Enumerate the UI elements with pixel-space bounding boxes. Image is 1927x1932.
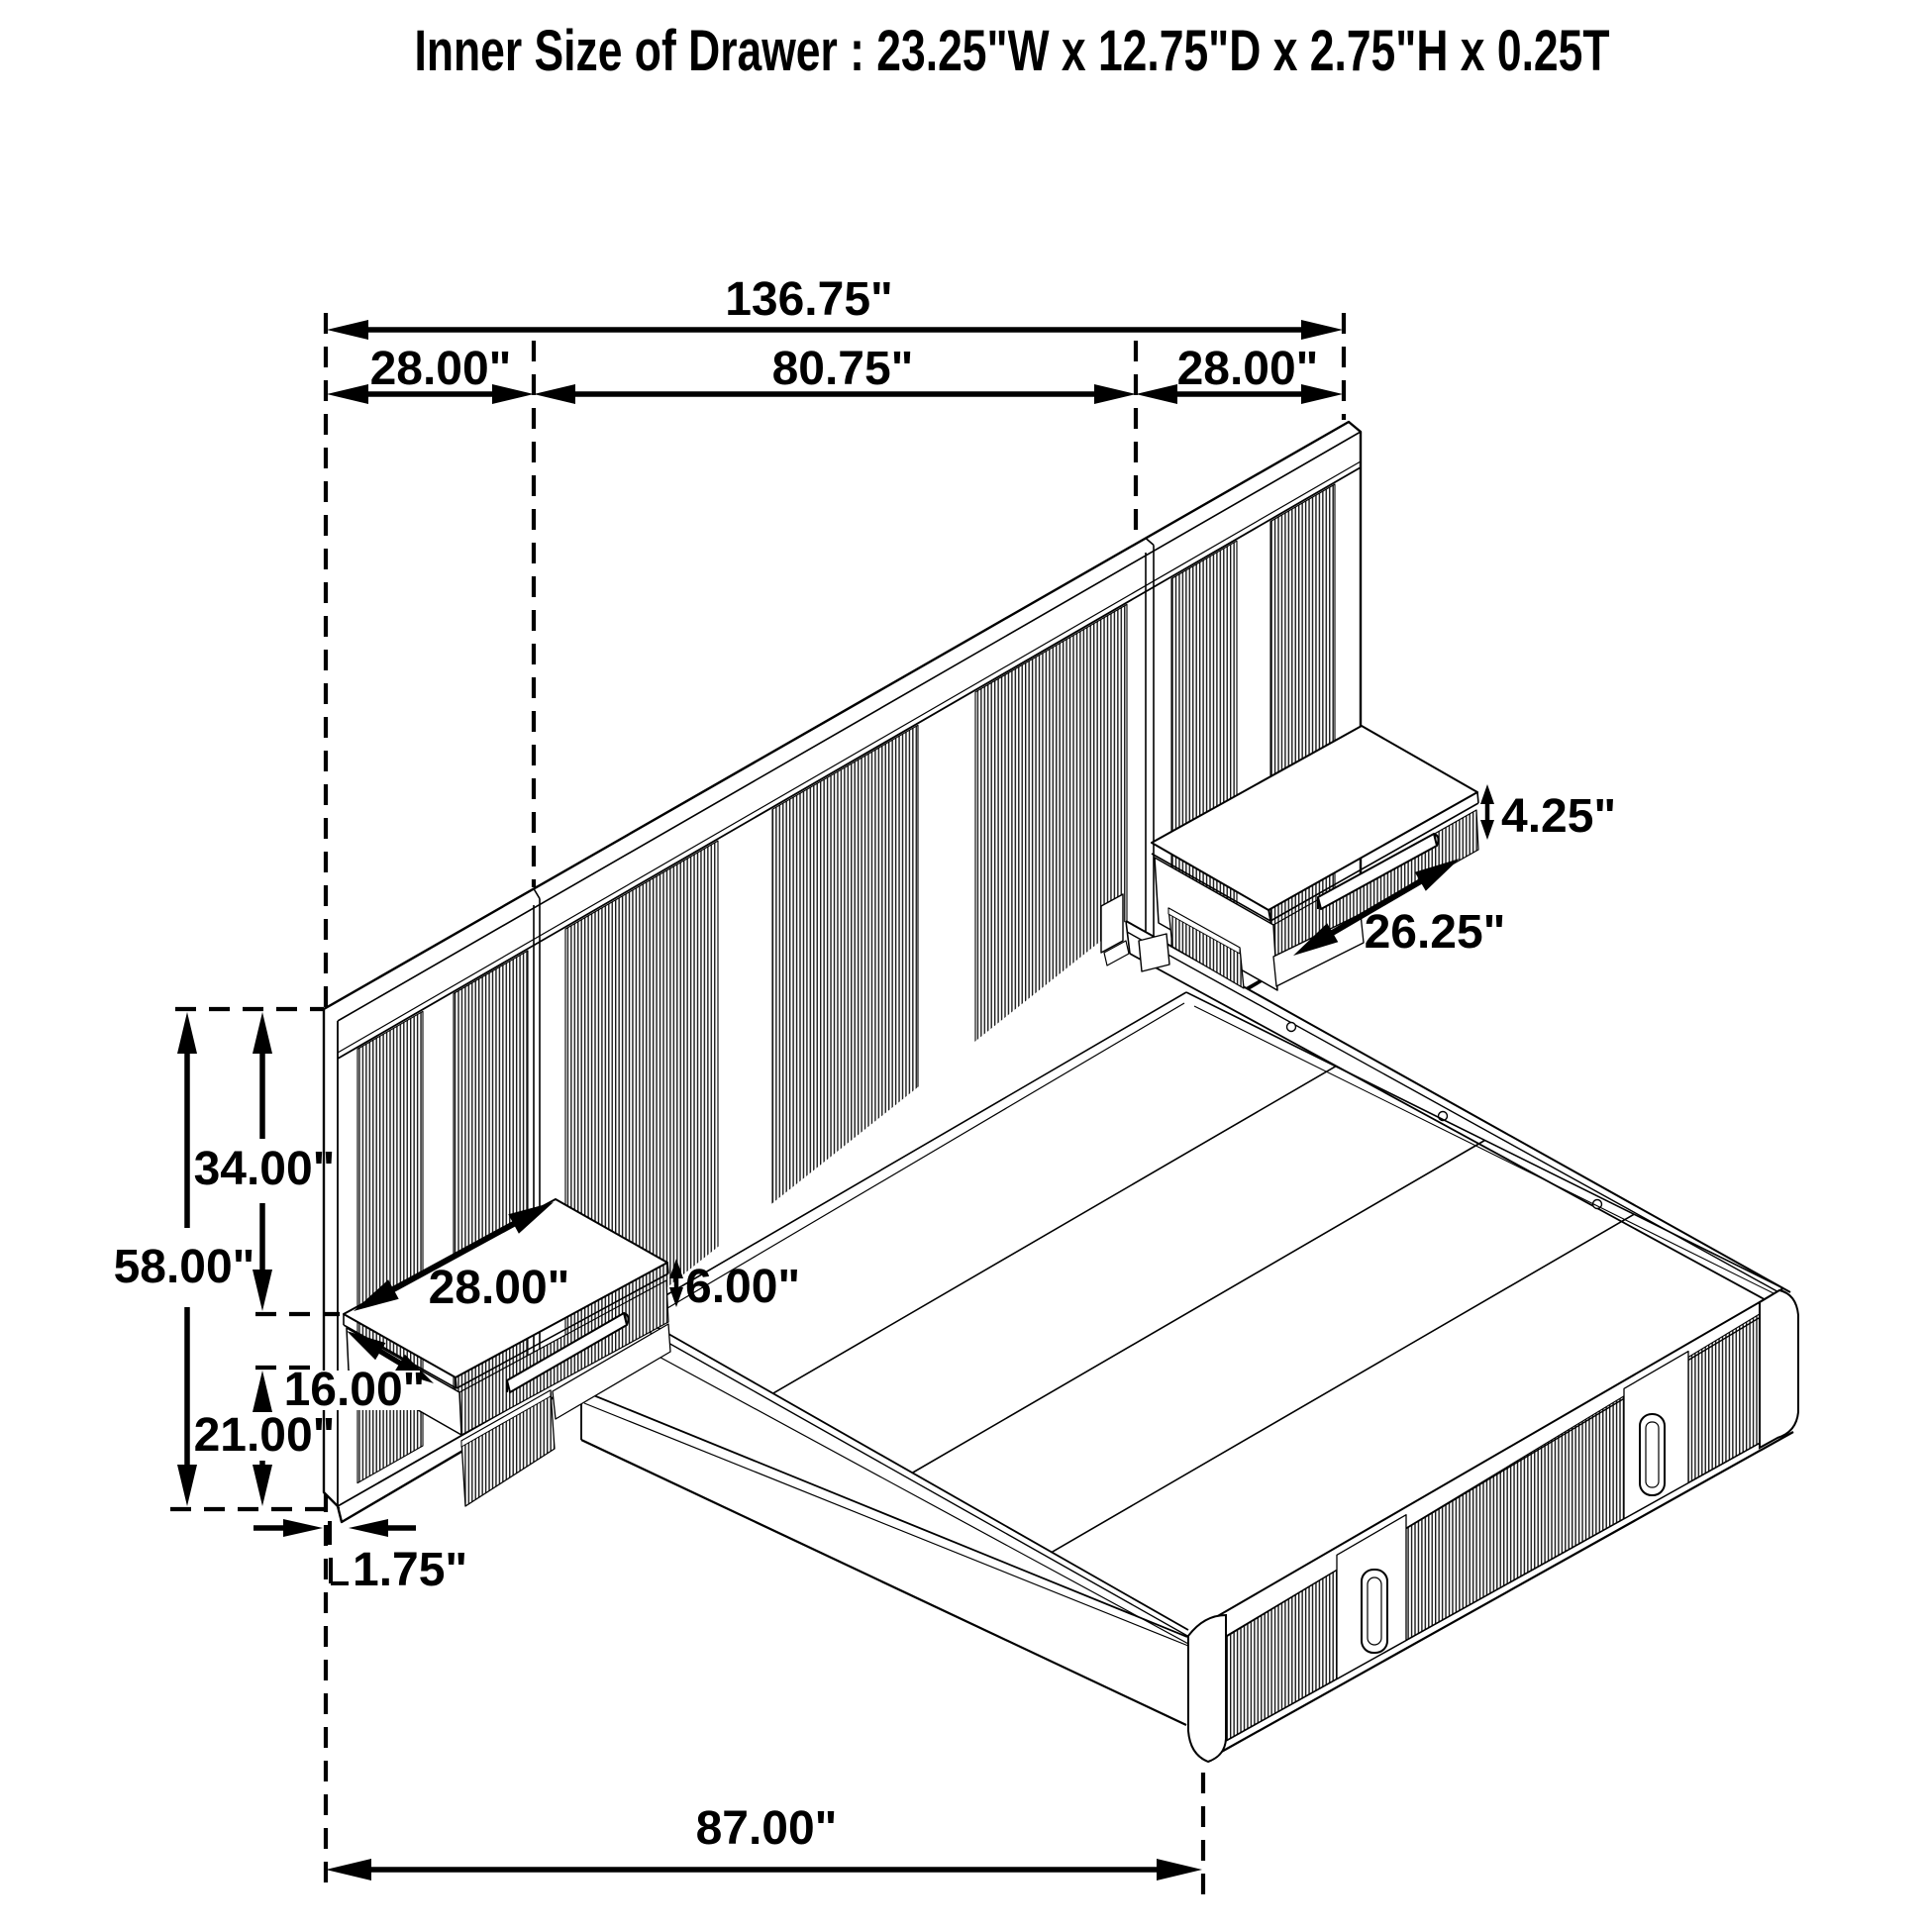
svg-text:28.00": 28.00" [370, 343, 512, 395]
svg-text:4.25": 4.25" [1501, 790, 1616, 843]
svg-text:1.75": 1.75" [353, 1544, 467, 1596]
svg-text:58.00": 58.00" [114, 1241, 255, 1293]
svg-text:6.00": 6.00" [685, 1261, 800, 1313]
svg-text:87.00": 87.00" [696, 1802, 838, 1855]
svg-text:28.00": 28.00" [1177, 343, 1319, 395]
svg-text:26.25": 26.25" [1365, 906, 1506, 959]
svg-text:136.75": 136.75" [725, 273, 893, 326]
svg-text:28.00": 28.00" [429, 1262, 570, 1314]
svg-text:21.00": 21.00" [194, 1409, 336, 1462]
svg-text:34.00": 34.00" [194, 1143, 336, 1195]
svg-text:80.75": 80.75" [772, 343, 914, 395]
svg-text:Inner Size of Drawer : 23.25"W: Inner Size of Drawer : 23.25"W x 12.75"D… [415, 19, 1610, 83]
